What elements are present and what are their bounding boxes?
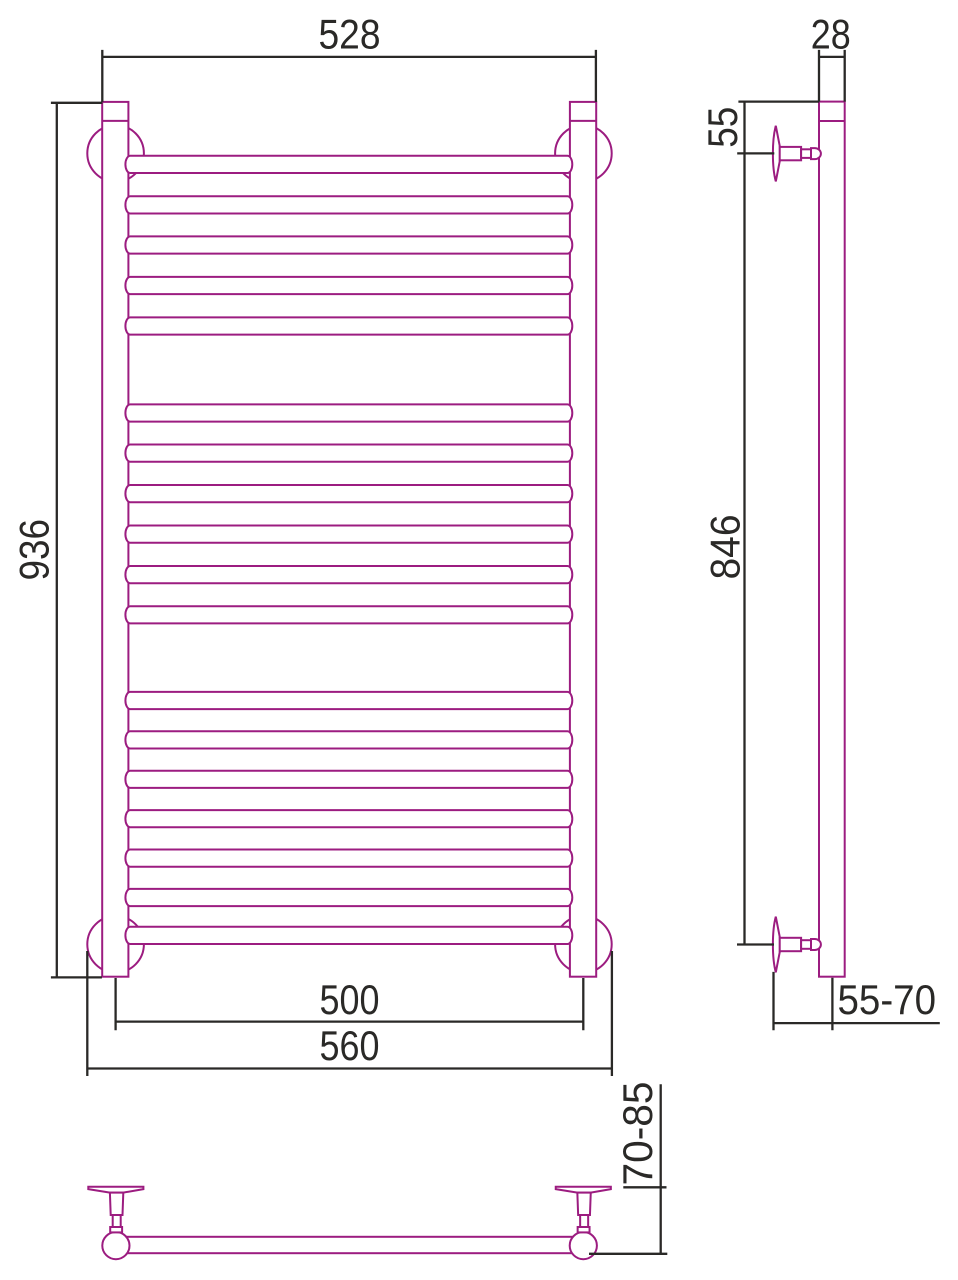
svg-text:55-70: 55-70 (838, 977, 937, 1023)
svg-text:846: 846 (702, 515, 748, 580)
svg-text:70-85: 70-85 (615, 1082, 661, 1186)
svg-text:28: 28 (811, 12, 851, 58)
svg-text:560: 560 (320, 1023, 380, 1069)
svg-text:528: 528 (319, 12, 381, 58)
svg-text:500: 500 (320, 977, 380, 1023)
svg-text:55: 55 (700, 107, 746, 148)
svg-text:936: 936 (12, 519, 58, 581)
